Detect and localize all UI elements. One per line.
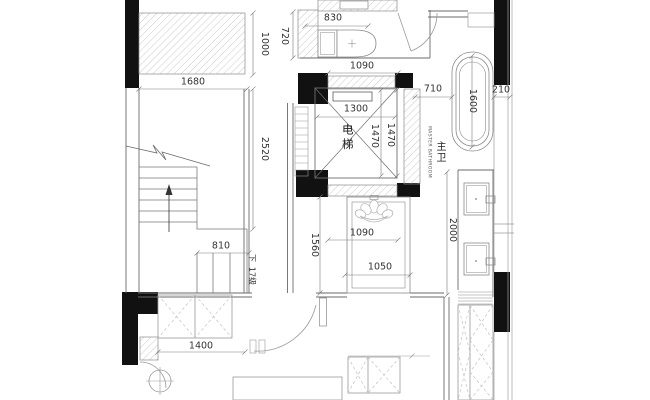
dim-line-1300 <box>315 115 398 120</box>
bathtub <box>452 52 493 151</box>
lobby-door-leaf <box>320 298 327 326</box>
bottom-left-door-swing <box>140 362 166 388</box>
nightstand <box>348 357 400 393</box>
dim-line-1560 <box>318 195 323 296</box>
hatched-walls <box>139 0 420 360</box>
stairs-up-arrow <box>166 184 173 195</box>
toilet-door <box>398 13 437 51</box>
furniture <box>158 295 493 400</box>
floor-plan-drawing <box>0 0 650 400</box>
window-top <box>340 1 368 9</box>
dim-line-1680 <box>137 87 250 92</box>
dim-line-720 <box>291 10 296 61</box>
dim-line-2520 <box>251 87 256 232</box>
lobby-door-swing <box>254 305 316 351</box>
drain-symbol <box>146 367 174 395</box>
stairs <box>126 145 247 293</box>
dim-line-1000 <box>251 11 256 78</box>
dim-line-210 <box>492 95 513 100</box>
dim-line-2000 <box>445 170 450 298</box>
dim-line-1090-shower <box>326 238 401 243</box>
dim-line-1470-a <box>379 88 384 179</box>
furniture-cross-hatch <box>158 295 493 400</box>
dim-line-1400 <box>156 350 248 355</box>
floor-plan-canvas: 830 1000 720 1680 1090 710 1600 210 1300… <box>0 0 650 400</box>
shelf-lines <box>458 292 493 304</box>
toilet <box>318 30 376 57</box>
dim-line-1050 <box>343 273 413 278</box>
elevator-vent <box>295 107 308 176</box>
vanity-sinks <box>458 183 495 304</box>
dim-line-1090-top <box>326 71 401 76</box>
dim-line-810 <box>195 251 252 256</box>
bed <box>233 377 342 400</box>
shower-head-symbol <box>354 200 394 222</box>
wardrobe-right <box>458 305 493 400</box>
